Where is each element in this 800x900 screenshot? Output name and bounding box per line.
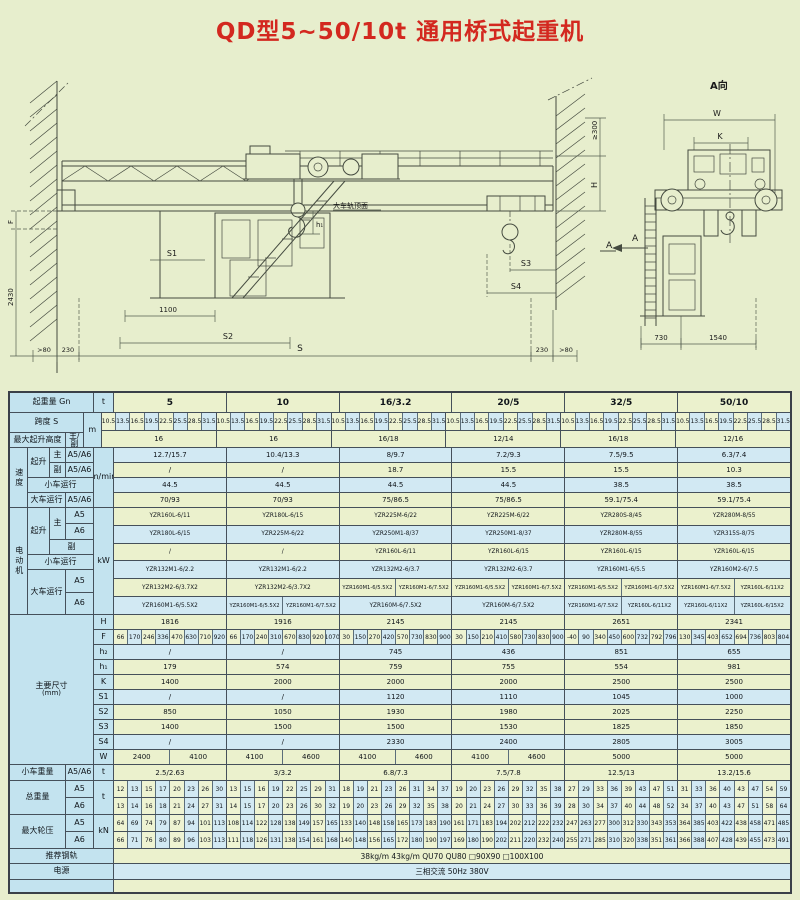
subcell: 28.5 <box>188 413 202 430</box>
subcell: 25 <box>297 781 311 797</box>
subcell: 732 <box>636 630 650 644</box>
dim-ge300: ≥300 <box>556 118 606 156</box>
subcell: 10.5 <box>676 413 690 430</box>
a5a6-label: A5/A6 <box>66 493 94 508</box>
cell: 44.5 <box>227 478 340 492</box>
subcell: 730 <box>410 630 424 644</box>
cell: YZR160M1-6/5.5 <box>565 561 678 578</box>
subcell: 118 <box>241 832 255 848</box>
cell: 2021242730333639 <box>452 798 565 814</box>
subcell: 14 <box>227 798 241 814</box>
subcell: 31.5 <box>777 413 790 430</box>
wheel-load-unit: kN <box>94 815 114 849</box>
subcell: 26 <box>396 781 410 797</box>
subcell: YZR160M1-6/7.5X2 <box>283 597 338 614</box>
a5a6-label: A5/A6 <box>66 765 94 781</box>
motor-group-label: 电动机 <box>10 508 28 615</box>
subcell: 24 <box>481 798 495 814</box>
cell: 554 <box>565 660 678 674</box>
svg-text:H: H <box>590 182 599 188</box>
subcell: 20 <box>452 798 466 814</box>
subcell: 485 <box>777 815 790 831</box>
capacity-label: 起重量 Gn <box>10 393 94 413</box>
subcell: 30 <box>340 630 354 644</box>
subcell: 22.5 <box>159 413 173 430</box>
subcell: 172 <box>396 832 410 848</box>
cell: YZR225M-6/22 <box>340 508 453 525</box>
dim-w-label: W <box>713 109 721 118</box>
cell: YZR132M1-6/2.2 <box>114 561 227 578</box>
cell: 20/5 <box>452 393 565 412</box>
cell: / <box>114 544 227 561</box>
cell: 247263277300312330343353 <box>565 815 678 831</box>
cell: 169180190202211220232240 <box>452 832 565 848</box>
subcell: 29 <box>311 781 325 797</box>
subcell: 277 <box>594 815 608 831</box>
dim-h1-values: 179574759755554981 <box>114 660 790 675</box>
cell: 108114122128138149157165 <box>227 815 340 831</box>
subcell: 13.5 <box>461 413 475 430</box>
cell: 111118126131138154161168 <box>227 832 340 848</box>
subcell: 28 <box>565 798 579 814</box>
subcell: 438 <box>735 815 749 831</box>
subcell: 31.5 <box>317 413 330 430</box>
subcell: 25.5 <box>633 413 647 430</box>
subcell: 169 <box>452 832 466 848</box>
subcell: 26 <box>382 798 396 814</box>
subcell: 670 <box>283 630 297 644</box>
subcell: 310 <box>269 630 283 644</box>
cell: YZR160M1-6/5.5X2YZR160M1-6/7.5X2 <box>452 579 565 596</box>
subcell: 43 <box>720 798 734 814</box>
cell: 1916 <box>227 615 340 629</box>
main-label: 主 <box>50 508 66 540</box>
subcell: 13.5 <box>690 413 704 430</box>
subcell: 87 <box>170 815 184 831</box>
subcell: 158 <box>382 815 396 831</box>
subcell: 491 <box>777 832 790 848</box>
subcell: 113 <box>213 832 226 848</box>
subcell: 19.5 <box>145 413 159 430</box>
cell: 10 <box>227 393 340 412</box>
cell: YZR250M1-8/37 <box>340 526 453 543</box>
subcell: 47 <box>650 781 664 797</box>
cell: YZR160L-6/11 <box>114 508 227 525</box>
subcell: 128 <box>269 815 283 831</box>
subcell: 410 <box>495 630 509 644</box>
subcell: 28.5 <box>418 413 432 430</box>
cell: YZR180L-6/15 <box>227 508 340 525</box>
dim-h2-values: //745436851655 <box>114 645 790 660</box>
a6-label: A6 <box>66 593 94 615</box>
dim-W-values: 2400410041004600410046004100460050005000 <box>114 750 790 765</box>
cell: YZR160L-6/11X2YZR160L-6/15X2 <box>678 597 790 614</box>
subcell: YZR160M1-6/5.5X2 <box>227 597 283 614</box>
cell: 366388407428439455473491 <box>678 832 790 848</box>
cell: YZR160L-6/15 <box>452 544 565 561</box>
cell: 2000 <box>340 675 453 689</box>
subcell: 31 <box>213 798 226 814</box>
row-capacity: 起重量 Gn t 51016/3.220/532/550/10 <box>10 393 790 413</box>
subcell: 27 <box>199 798 213 814</box>
subcell: 30 <box>213 781 226 797</box>
cell: 15.5 <box>452 463 565 477</box>
subcell: 22.5 <box>274 413 288 430</box>
subcell: 19 <box>452 781 466 797</box>
subcell: 34 <box>424 781 438 797</box>
subcell: 24 <box>185 798 199 814</box>
empty-data-cell <box>114 880 790 892</box>
subcell: 830 <box>537 630 551 644</box>
speed-main-values: 12.7/15.710.4/13.38/9.77.2/9.37.5/9.56.3… <box>114 448 790 463</box>
subcell: 4600 <box>396 750 451 764</box>
cell: 1120 <box>340 690 453 704</box>
subcell: 16.5 <box>475 413 489 430</box>
cell: 1500 <box>227 720 340 734</box>
subcell: YZR160M1-6/7.5X2 <box>565 597 621 614</box>
dim-label-F: F <box>94 630 114 645</box>
cell: 16/18 <box>561 431 676 448</box>
subcell: 190 <box>481 832 495 848</box>
subcell: 428 <box>720 832 734 848</box>
svg-text:230: 230 <box>62 346 74 354</box>
subcell: 90 <box>579 630 593 644</box>
motor-main-a5-values: YZR160L-6/11YZR180L-6/15YZR225M-6/22YZR2… <box>114 508 790 526</box>
cell: 12/14 <box>446 431 561 448</box>
subcell: 39 <box>551 798 564 814</box>
subcell: YZR160L-6/11X2 <box>622 597 677 614</box>
cell: YZR132M2-6/3.7 <box>340 561 453 578</box>
subcell: 66 <box>227 630 241 644</box>
subcell: 94 <box>185 815 199 831</box>
dim-H: H <box>556 156 606 211</box>
cell: 2025 <box>565 705 678 719</box>
subcell: 38 <box>551 781 564 797</box>
svg-text:230: 230 <box>536 346 548 354</box>
cell: YZR160M1-6/7.5X2YZR160L-6/11X2 <box>565 597 678 614</box>
subcell: 30 <box>311 798 325 814</box>
subcell: 52 <box>664 798 677 814</box>
subcell: 570 <box>396 630 410 644</box>
cell: 16/18 <box>332 431 447 448</box>
subcell: 385 <box>692 815 706 831</box>
subcell: 13.5 <box>116 413 130 430</box>
subcell: 96 <box>185 832 199 848</box>
cell: 745 <box>340 645 453 659</box>
dim-s1: S1 <box>150 249 205 260</box>
cell: / <box>114 735 227 749</box>
cell: 38.5 <box>678 478 790 492</box>
subcell: 170 <box>128 630 142 644</box>
cell: YZR160M2-6/7.5 <box>678 561 790 578</box>
subcell: 353 <box>664 815 677 831</box>
subcell: 23 <box>481 781 495 797</box>
subcell: 4100 <box>452 750 508 764</box>
main-aux-label: 主/副 <box>66 433 84 448</box>
subcell: 197 <box>438 832 451 848</box>
subcell: 39 <box>622 781 636 797</box>
subcell: 220 <box>523 832 537 848</box>
subcell: 37 <box>608 798 622 814</box>
a6-label: A6 <box>66 798 94 815</box>
a5a6-label: A5/A6 <box>66 448 94 463</box>
subcell: 210 <box>481 630 495 644</box>
hoist-label: 起升 <box>28 508 50 555</box>
subcell: 422 <box>720 815 734 831</box>
cell: 2330 <box>340 735 453 749</box>
subcell: 330 <box>636 815 650 831</box>
cell: 12.5/13 <box>565 765 678 780</box>
cell: 1050 <box>227 705 340 719</box>
subcell: 30 <box>579 798 593 814</box>
power-value: 三相交流 50Hz 380V <box>114 864 790 880</box>
subcell: 16.5 <box>245 413 259 430</box>
subcell: 150 <box>354 630 368 644</box>
subcell: 30 <box>509 798 523 814</box>
subcell: 26 <box>199 781 213 797</box>
cell: 2805 <box>565 735 678 749</box>
cell: 755 <box>452 660 565 674</box>
cell: 30150210410580730830900 <box>452 630 565 644</box>
dim-label-S4: S4 <box>94 735 114 750</box>
cell: 44.5 <box>340 478 453 492</box>
cell: 1920232629323538 <box>452 781 565 797</box>
cell: 75/86.5 <box>452 493 565 507</box>
cell: 1314161821242731 <box>114 798 227 814</box>
subcell: 15 <box>142 781 156 797</box>
subcell: 439 <box>735 832 749 848</box>
cell: YZR280S-8/45 <box>565 508 678 525</box>
wheel-a6-values: 6671768089961031131111181261311381541611… <box>114 832 790 849</box>
cell: 5000 <box>565 750 678 764</box>
subcell: 211 <box>509 832 523 848</box>
subcell: 31.5 <box>202 413 215 430</box>
cell: 759 <box>340 660 453 674</box>
subcell: 351 <box>650 832 664 848</box>
cell: 436 <box>452 645 565 659</box>
cell: 1315161922252931 <box>227 781 340 797</box>
subcell: 28.5 <box>762 413 776 430</box>
subcell: 157 <box>311 815 325 831</box>
svg-text:≥300: ≥300 <box>591 121 599 140</box>
cell: YZR160M1-6/5.5X2 <box>114 597 227 614</box>
span-unit: m <box>84 413 102 448</box>
dim-label-K: K <box>94 675 114 690</box>
dim-k-label: K <box>717 132 723 141</box>
subcell: 10.5 <box>446 413 460 430</box>
dim-label-h1: h₁ <box>94 660 114 675</box>
subcell: 18 <box>340 781 354 797</box>
cell: YZR160M1-6/5.5X2YZR160M1-6/7.5X2 <box>565 579 678 596</box>
row-span-height: 跨度 S 最大起升高度 主/副 m 10.513.516.519.522.525… <box>10 413 790 448</box>
subcell: YZR160L-6/11X2 <box>678 597 734 614</box>
a5-label: A5 <box>66 781 94 798</box>
subcell: 16.5 <box>705 413 719 430</box>
subcell: 900 <box>551 630 564 644</box>
motor-crane-a5-values: YZR132M2-6/3.7X2YZR132M2-6/3.7X2YZR160M1… <box>114 579 790 597</box>
rail-label: 推荐钢轨 <box>10 849 114 864</box>
section-arrow-a: A <box>612 234 648 252</box>
subcell: 240 <box>255 630 269 644</box>
a5-label: A5 <box>66 570 94 593</box>
subcell: 138 <box>283 815 297 831</box>
subcell: 15 <box>241 781 255 797</box>
subcell: 126 <box>255 832 269 848</box>
cell: 12/16 <box>676 431 790 448</box>
subcell: 361 <box>664 832 677 848</box>
subcell: 803 <box>763 630 777 644</box>
cell: 161171183194202212222232 <box>452 815 565 831</box>
subcell: 43 <box>735 781 749 797</box>
subcell: 458 <box>749 815 763 831</box>
dim-s3: S3 <box>510 244 556 274</box>
subcell: 255 <box>565 832 579 848</box>
subcell: 4100 <box>340 750 396 764</box>
lift-height-label: 最大起升高度 <box>10 433 66 448</box>
cell: 2830343740444852 <box>565 798 678 814</box>
subcell: 148 <box>354 832 368 848</box>
total-weight-unit: t <box>94 781 114 815</box>
cell: 75/86.5 <box>340 493 453 507</box>
subcell: 804 <box>777 630 790 644</box>
wheel-a5-values: 6469747987941011131081141221281381491571… <box>114 815 790 832</box>
subcell: 48 <box>650 798 664 814</box>
subcell: 270 <box>368 630 382 644</box>
cell: 2.5/2.63 <box>114 765 227 780</box>
cell: YZR180L-6/15 <box>114 526 227 543</box>
cell: 5 <box>114 393 227 412</box>
cell: 7.2/9.3 <box>452 448 565 462</box>
lift-height-values: 161616/1812/1416/1812/16 <box>102 431 790 449</box>
subcell: 194 <box>495 815 509 831</box>
subcell: 17 <box>255 798 269 814</box>
subcell: 240 <box>551 832 564 848</box>
subcell: 140 <box>340 832 354 848</box>
total-a5-values: 1213151720232630131516192225293118192123… <box>114 781 790 798</box>
cell: 10.513.516.519.522.525.528.531.5 <box>676 413 790 430</box>
subcell: 76 <box>142 832 156 848</box>
subcell: 28.5 <box>533 413 547 430</box>
crane-technical-drawing: 大车轨顶面 h₁ S3 S4 A ≥300 H F <box>0 58 800 391</box>
cell: 50/10 <box>678 393 790 412</box>
subcell: 40 <box>706 798 720 814</box>
cell: 851 <box>565 645 678 659</box>
cell: 3005 <box>678 735 790 749</box>
motor-crane-a6-values: YZR160M1-6/5.5X2YZR160M1-6/5.5X2YZR160M1… <box>114 597 790 615</box>
subcell: 25.5 <box>748 413 762 430</box>
subcell: 407 <box>706 832 720 848</box>
subcell: 133 <box>340 815 354 831</box>
subcell: 13 <box>128 781 142 797</box>
aux-hoist <box>487 196 545 254</box>
subcell: 23 <box>283 798 297 814</box>
cell: YZR132M1-6/2.2 <box>227 561 340 578</box>
subcell: 345 <box>692 630 706 644</box>
svg-text:S: S <box>297 344 303 354</box>
subcell: 13.5 <box>346 413 360 430</box>
subcell: 19.5 <box>375 413 389 430</box>
dim-H-values: 181619162145214526512341 <box>114 615 790 630</box>
power-label: 电源 <box>10 864 114 880</box>
subcell: 190 <box>438 815 451 831</box>
cell: 1816 <box>114 615 227 629</box>
cell: YZR160L-6/11 <box>340 544 453 561</box>
cell: YZR225M-6/22 <box>227 526 340 543</box>
subcell: 23 <box>382 781 396 797</box>
cell: YZR225M-6/22 <box>452 508 565 525</box>
cell: 1825 <box>565 720 678 734</box>
subcell: 338 <box>636 832 650 848</box>
cell: 661702403106708309201070 <box>227 630 340 644</box>
cell: 179 <box>114 660 227 674</box>
cell: 2341 <box>678 615 790 629</box>
side-a-label: A <box>606 241 613 251</box>
subcell: 900 <box>438 630 451 644</box>
subcell: 2400 <box>114 750 170 764</box>
cell: 7.5/7.8 <box>452 765 565 780</box>
trolley-weight-label: 小车重量 <box>10 765 66 781</box>
subcell: 161 <box>452 815 466 831</box>
subcell: 21 <box>467 798 481 814</box>
subcell: 180 <box>410 832 424 848</box>
trolley-run-label: 小车运行 <box>28 555 94 570</box>
cell: 44.5 <box>452 478 565 492</box>
cell: 255271285310320338351361 <box>565 832 678 848</box>
main-label: 主 <box>50 448 66 463</box>
subcell: 22.5 <box>504 413 518 430</box>
group-speed: 速度 起升 主 A5/A6 副 A5/A6 小车运行 大车运行 A5 <box>10 448 790 508</box>
cell: / <box>227 463 340 477</box>
dim-label-W: W <box>94 750 114 765</box>
subcell: 114 <box>241 815 255 831</box>
subcell: 20 <box>269 798 283 814</box>
cell: 1500 <box>340 720 453 734</box>
subcell: 14 <box>128 798 142 814</box>
cell: 3437404347515864 <box>678 798 790 814</box>
dim-label-S3: S3 <box>94 720 114 735</box>
cell: 38.5 <box>565 478 678 492</box>
subcell: 31 <box>410 781 424 797</box>
subcell: 403 <box>706 630 720 644</box>
cell: 10.513.516.519.522.525.528.531.5 <box>561 413 676 430</box>
cell: YZR160M-6/7.5X2 <box>340 597 453 614</box>
cell: 1530 <box>452 720 565 734</box>
subcell: YZR160M1-6/5.5X2 <box>340 579 396 596</box>
cell: 41004600 <box>340 750 453 764</box>
cell: 16 <box>217 431 332 448</box>
subcell: -40 <box>565 630 579 644</box>
subcell: 263 <box>579 815 593 831</box>
cell: 18.7 <box>340 463 453 477</box>
subcell: 183 <box>424 815 438 831</box>
speed-unit: m/min <box>94 448 114 508</box>
subcell: 13 <box>227 781 241 797</box>
subcell: YZR160L-6/11X2 <box>735 579 790 596</box>
cell: 850 <box>114 705 227 719</box>
cell: 70/93 <box>114 493 227 507</box>
subcell: 25.5 <box>403 413 417 430</box>
subcell: 170 <box>241 630 255 644</box>
cell: 1045 <box>565 690 678 704</box>
cell: 1819212326313437 <box>340 781 453 797</box>
subcell: 34 <box>678 798 692 814</box>
subcell: 19.5 <box>489 413 503 430</box>
subcell: 31.5 <box>432 413 445 430</box>
subcell: 27 <box>495 798 509 814</box>
cell: 16 <box>102 431 217 448</box>
cell: 133140148158165173183190 <box>340 815 453 831</box>
cell: YZR160L-6/15 <box>678 544 790 561</box>
